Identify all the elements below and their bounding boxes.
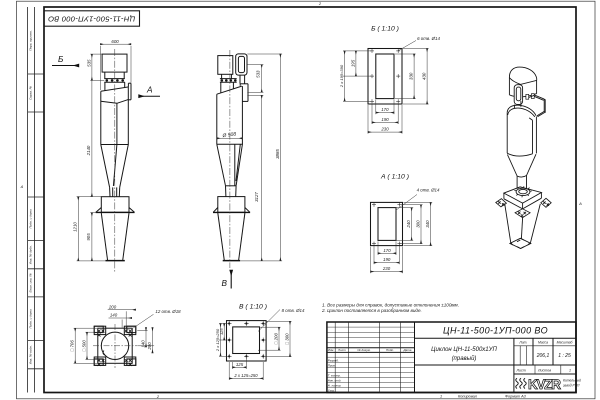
svg-text:300: 300 [415, 220, 420, 228]
svg-text:1: 1 [569, 368, 571, 372]
svg-text:535: 535 [86, 59, 91, 67]
svg-text:Б ( 1:10 ): Б ( 1:10 ) [371, 26, 399, 33]
svg-text:А: А [146, 86, 153, 95]
svg-text:600: 600 [111, 39, 119, 44]
svg-text:340: 340 [425, 220, 430, 228]
svg-text:А: А [578, 201, 582, 206]
svg-text:170: 170 [383, 248, 391, 253]
svg-text:Инв. № дубл.: Инв. № дубл. [28, 245, 32, 264]
svg-text:Подп. и дата: Подп. и дата [28, 209, 32, 229]
svg-text:330: 330 [409, 72, 414, 80]
svg-text:3885: 3885 [275, 149, 280, 159]
svg-text:4 отв. Ø14: 4 отв. Ø14 [417, 188, 440, 193]
svg-text:195: 195 [350, 59, 355, 67]
svg-text:430: 430 [422, 72, 427, 80]
svg-text:Т. контр.: Т. контр. [328, 374, 341, 378]
svg-text:140: 140 [110, 313, 118, 318]
svg-text:Лист: Лист [516, 368, 526, 372]
svg-text:□ 706: □ 706 [70, 340, 75, 352]
svg-text:125: 125 [236, 362, 244, 367]
svg-text:Масштаб: Масштаб [557, 340, 573, 344]
svg-text:Изм.: Изм. [328, 348, 335, 352]
svg-text:Формат А3: Формат А3 [505, 394, 527, 398]
svg-text:ЦН-11-500-1УП-000 ВО: ЦН-11-500-1УП-000 ВО [48, 15, 135, 24]
svg-text:□ 300: □ 300 [284, 333, 289, 345]
svg-text:Лист: Лист [337, 348, 346, 352]
svg-text:ЦН-11-500-1УП-000 ВО: ЦН-11-500-1УП-000 ВО [443, 326, 548, 336]
svg-text:140: 140 [141, 340, 146, 348]
svg-text:□ 500: □ 500 [81, 340, 86, 352]
svg-text:Лит.: Лит. [518, 340, 527, 344]
svg-text:200: 200 [108, 304, 117, 309]
svg-text:230: 230 [382, 266, 391, 271]
svg-text:8 отв. Ø14: 8 отв. Ø14 [282, 308, 305, 313]
svg-text:230: 230 [380, 127, 389, 132]
svg-text:533: 533 [256, 70, 261, 78]
svg-text:Справ. №: Справ. № [28, 85, 32, 100]
svg-text:2 х 195=390: 2 х 195=390 [339, 64, 344, 88]
svg-text:Листов: Листов [537, 368, 551, 372]
svg-text:190: 190 [381, 117, 389, 122]
svg-text:Дата: Дата [403, 348, 412, 352]
svg-text:Подп.: Подп. [386, 348, 394, 352]
svg-text:Масса: Масса [538, 340, 548, 344]
svg-text:Котельный: Котельный [563, 379, 581, 383]
svg-text:Пров.: Пров. [328, 363, 336, 367]
svg-text:2: 2 [318, 1, 322, 6]
svg-text:Б: Б [58, 55, 64, 64]
svg-text:А: А [20, 184, 24, 189]
svg-text:Взам. инв. №: Взам. инв. № [28, 273, 32, 293]
svg-text:завод РЭП: завод РЭП [562, 384, 580, 388]
svg-text:170: 170 [381, 107, 389, 112]
svg-text:Нач. отд.: Нач. отд. [328, 379, 342, 383]
svg-text:1210: 1210 [72, 222, 77, 232]
svg-text:1 : 25: 1 : 25 [558, 353, 571, 359]
svg-text:Циклон ЦН-11-500х1УП: Циклон ЦН-11-500х1УП [431, 347, 497, 353]
svg-text:240: 240 [406, 220, 411, 229]
svg-text:190: 190 [383, 257, 391, 262]
svg-text:□ 200: □ 200 [273, 333, 278, 345]
svg-text:(правый): (правый) [452, 355, 477, 362]
svg-text:Подп. и дата: Подп. и дата [28, 309, 32, 329]
svg-text:2: 2 [156, 394, 160, 399]
svg-text:№ докум.: № докум. [357, 348, 370, 352]
svg-text:905: 905 [86, 233, 91, 241]
svg-text:12 отв. Ø18: 12 отв. Ø18 [155, 309, 181, 314]
svg-text:KVZR: KVZR [528, 377, 561, 392]
svg-text:206,1: 206,1 [536, 353, 550, 359]
svg-text:2140: 2140 [86, 145, 91, 156]
svg-text:Инв. № подл.: Инв. № подл. [28, 345, 32, 364]
svg-text:6 отв. Ø14: 6 отв. Ø14 [417, 36, 440, 41]
svg-text:Разраб.: Разраб. [328, 358, 339, 362]
svg-text:В ( 1:10 ): В ( 1:10 ) [239, 304, 267, 311]
svg-text:А ( 1:10 ): А ( 1:10 ) [380, 174, 409, 181]
svg-text:3127: 3127 [254, 192, 259, 202]
svg-text:1. Все размеры для справок, до: 1. Все размеры для справок, допустимые о… [322, 302, 459, 307]
svg-text:Утв.: Утв. [328, 389, 335, 393]
svg-text:1: 1 [440, 394, 442, 398]
svg-text:Н. контр.: Н. контр. [328, 384, 342, 388]
svg-text:Копировал: Копировал [458, 394, 478, 398]
svg-text:Перв. примен.: Перв. примен. [28, 30, 32, 51]
svg-text:В: В [222, 279, 228, 288]
svg-text:200: 200 [147, 342, 152, 351]
svg-text:2 х 125=250: 2 х 125=250 [215, 328, 220, 352]
svg-text:2 х 125=250: 2 х 125=250 [233, 373, 258, 378]
svg-text:2. Циклон поставляется в разоб: 2. Циклон поставляется в разобранном вид… [321, 308, 422, 313]
